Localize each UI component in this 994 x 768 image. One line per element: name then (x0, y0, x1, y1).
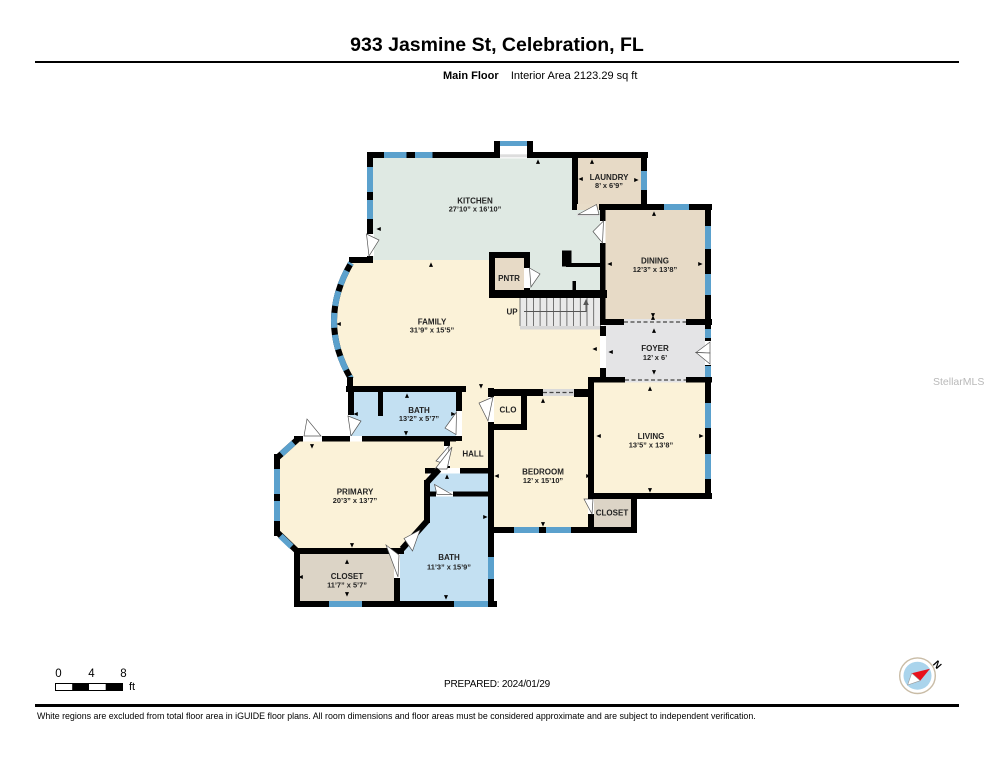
svg-text:UP: UP (506, 308, 518, 317)
svg-text:12’ x 15’10”: 12’ x 15’10” (523, 476, 564, 485)
svg-text:CLOSET: CLOSET (596, 509, 629, 518)
svg-text:8’ x 6’9”: 8’ x 6’9” (595, 181, 623, 190)
svg-text:PNTR: PNTR (498, 274, 520, 283)
svg-text:31’9” x 15’5”: 31’9” x 15’5” (410, 326, 455, 335)
svg-text:HALL: HALL (462, 450, 483, 459)
svg-text:FOYER: FOYER (641, 344, 669, 353)
svg-text:12’ x 6’: 12’ x 6’ (643, 353, 667, 362)
svg-text:13’5” x 13’8”: 13’5” x 13’8” (629, 441, 674, 450)
svg-text:11’7” x 5’7”: 11’7” x 5’7” (327, 581, 367, 590)
svg-text:13’2” x 5’7”: 13’2” x 5’7” (399, 414, 440, 423)
svg-text:CLO: CLO (500, 406, 517, 415)
svg-text:27’10” x 16’10”: 27’10” x 16’10” (449, 205, 502, 214)
svg-text:12’3” x 13’8”: 12’3” x 13’8” (633, 265, 678, 274)
svg-text:20’3” x 13’7”: 20’3” x 13’7” (333, 496, 378, 505)
svg-text:BATH: BATH (438, 553, 460, 562)
svg-text:11’3” x 15’9”: 11’3” x 15’9” (427, 563, 471, 572)
